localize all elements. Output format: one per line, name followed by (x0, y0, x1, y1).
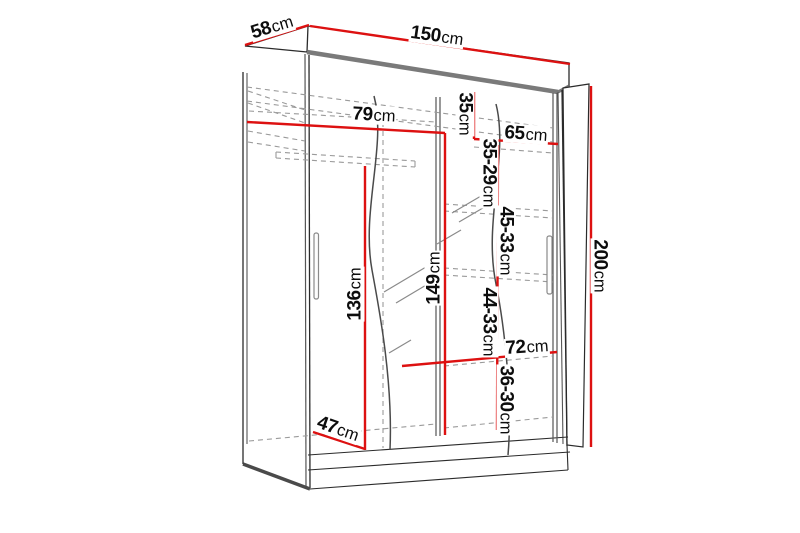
diagram-linework (0, 0, 800, 533)
plinth (308, 437, 570, 489)
dim-line-79 (247, 122, 445, 133)
dim-label-shelf-65: 65cm (503, 123, 549, 145)
wardrobe-dimension-diagram: 58cm 150cm 200cm 79cm 35cm 65cm 35-29cm … (0, 0, 800, 533)
hanging-rail (276, 152, 415, 167)
dim-label-door-136: 136cm (346, 266, 365, 321)
right-side-panel (563, 84, 589, 447)
dim-label-top-35: 35cm (456, 91, 475, 136)
dim-label-section-45-33: 45-33cm (497, 205, 516, 276)
dim-label-height: 200cm (591, 238, 610, 293)
wardrobe-top-panel (245, 26, 569, 92)
dim-label-interior-149: 149cm (425, 250, 444, 305)
right-door-handle (547, 236, 552, 294)
carcass-outline (243, 54, 567, 489)
dim-label-section-36-30: 36-30cm (497, 364, 516, 435)
dim-label-shelf-79: 79cm (351, 104, 397, 125)
dim-label-section-35-29: 35-29cm (480, 137, 499, 208)
left-door-handle (314, 233, 319, 299)
dim-label-section-44-33: 44-33cm (480, 286, 499, 357)
dim-label-shelf-72: 72cm (504, 336, 550, 358)
